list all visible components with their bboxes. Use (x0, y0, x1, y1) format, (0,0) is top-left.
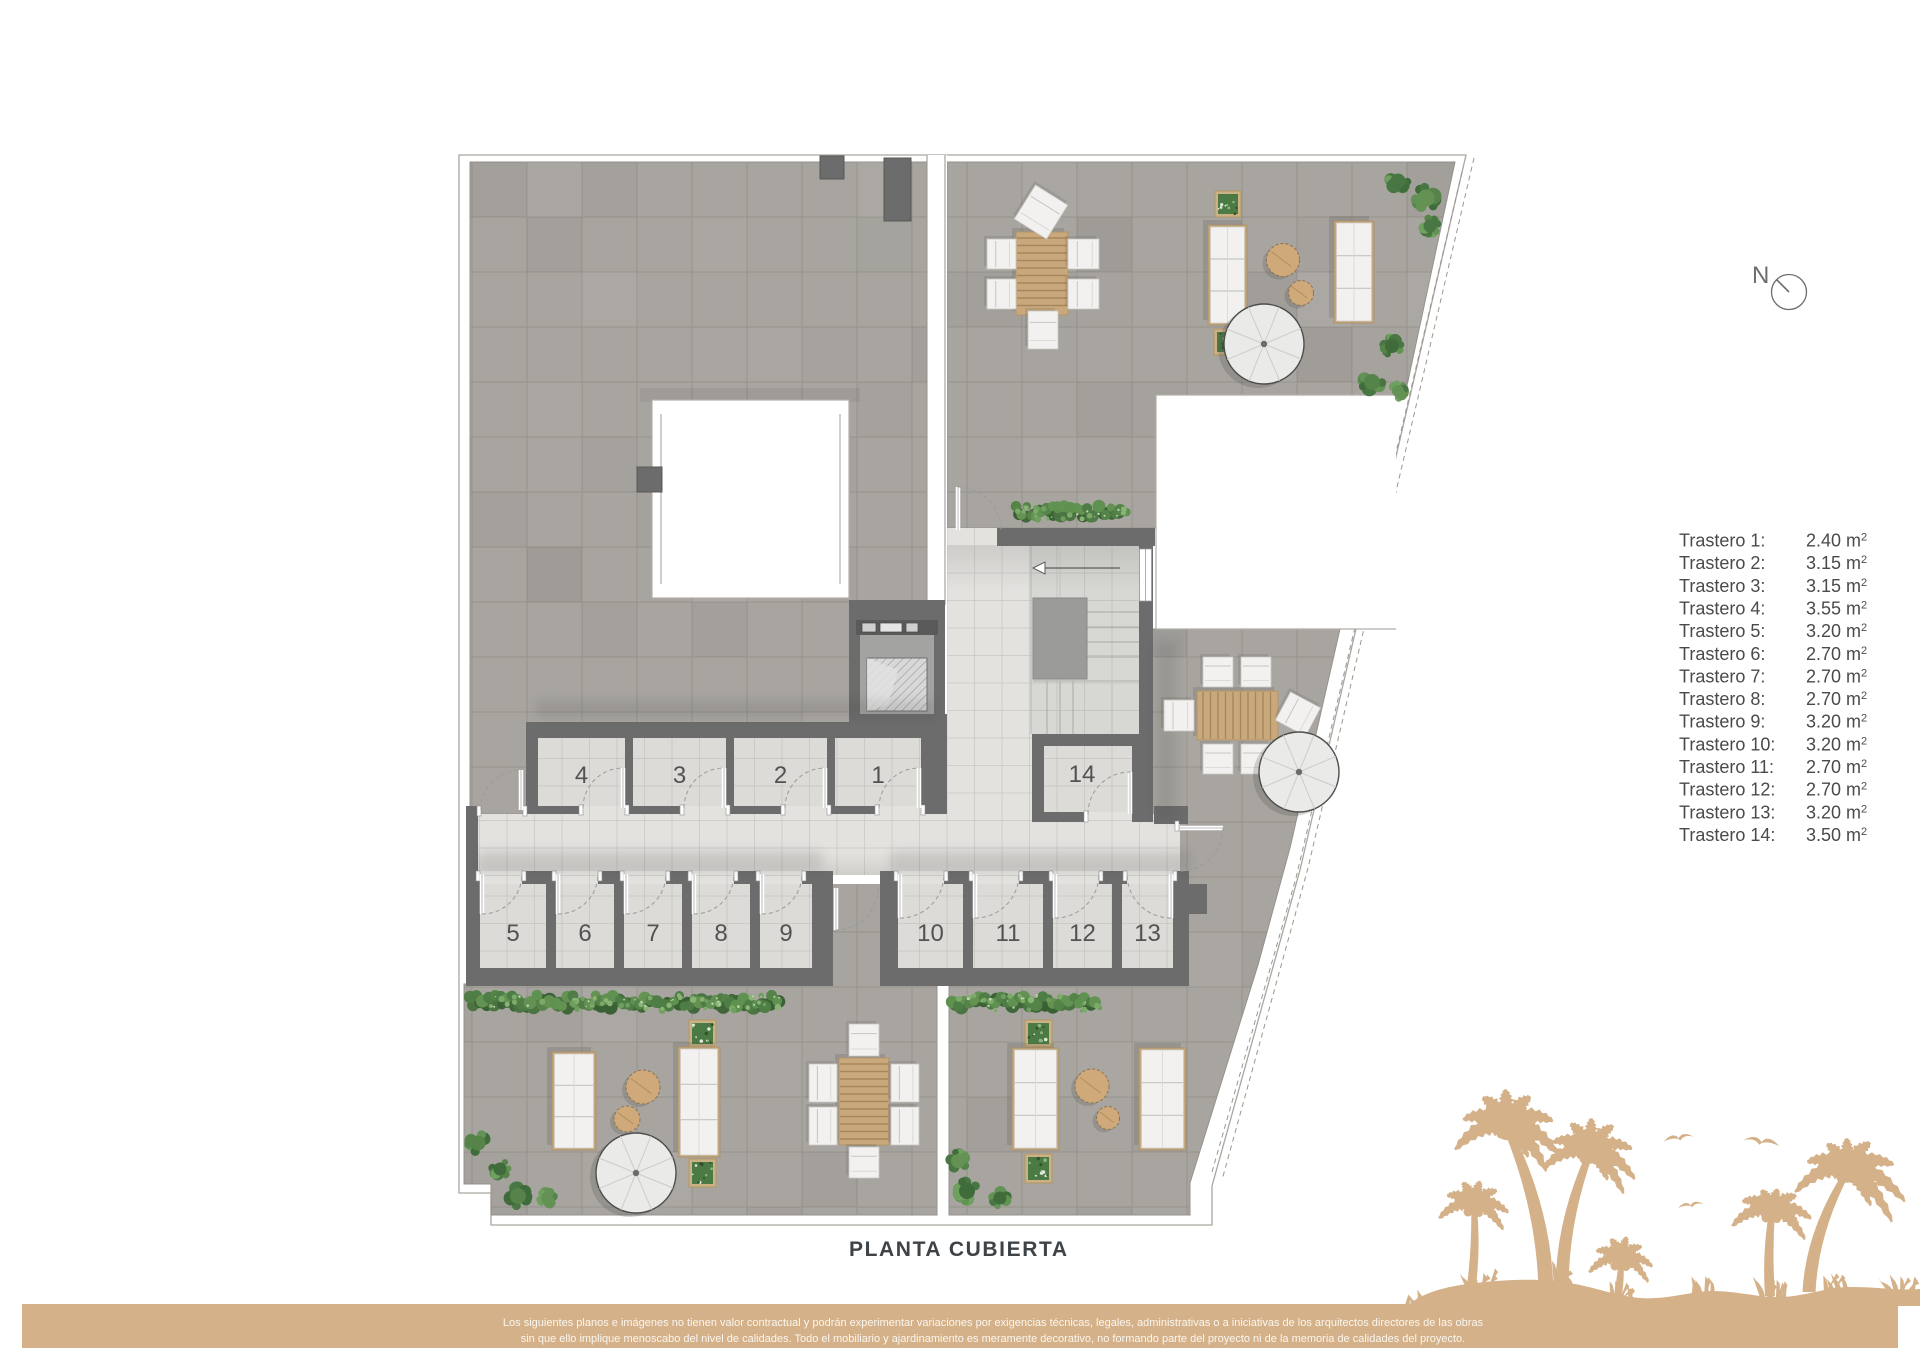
svg-text:Trastero 7:: Trastero 7: (1679, 666, 1765, 686)
svg-text:3.15 m2: 3.15 m2 (1806, 576, 1867, 596)
svg-text:3.20 m2: 3.20 m2 (1806, 712, 1867, 732)
svg-text:12: 12 (1069, 920, 1096, 947)
svg-text:3.50 m2: 3.50 m2 (1806, 825, 1867, 845)
svg-text:9: 9 (779, 920, 792, 947)
svg-text:3.20 m2: 3.20 m2 (1806, 621, 1867, 641)
svg-text:13: 13 (1134, 920, 1161, 947)
svg-text:8: 8 (714, 920, 727, 947)
svg-text:Trastero 5:: Trastero 5: (1679, 621, 1765, 641)
svg-text:2: 2 (774, 762, 787, 789)
svg-text:N: N (1752, 262, 1769, 289)
svg-text:3: 3 (673, 762, 686, 789)
svg-text:7: 7 (646, 920, 659, 947)
svg-text:3.20 m2: 3.20 m2 (1806, 734, 1867, 754)
svg-text:Trastero 8:: Trastero 8: (1679, 689, 1765, 709)
svg-text:Trastero 11:: Trastero 11: (1679, 757, 1774, 777)
svg-text:1: 1 (871, 762, 884, 789)
svg-text:Trastero 6:: Trastero 6: (1679, 644, 1765, 664)
svg-text:2.70 m2: 2.70 m2 (1806, 757, 1867, 777)
svg-text:3.55 m2: 3.55 m2 (1806, 599, 1867, 619)
svg-text:14: 14 (1069, 761, 1096, 788)
svg-text:2.40 m2: 2.40 m2 (1806, 531, 1867, 551)
svg-text:10: 10 (917, 920, 944, 947)
svg-text:Los siguientes planos e imágen: Los siguientes planos e imágenes no tien… (503, 1317, 1484, 1329)
svg-text:Trastero 12:: Trastero 12: (1679, 780, 1775, 800)
svg-text:Trastero 13:: Trastero 13: (1679, 802, 1775, 822)
svg-text:Trastero 3:: Trastero 3: (1679, 576, 1765, 596)
svg-text:6: 6 (578, 920, 591, 947)
svg-text:5: 5 (506, 920, 519, 947)
svg-text:11: 11 (996, 920, 1021, 947)
svg-text:Trastero 1:: Trastero 1: (1679, 531, 1765, 551)
svg-text:4: 4 (575, 762, 588, 789)
svg-text:2.70 m2: 2.70 m2 (1806, 780, 1867, 800)
svg-text:Trastero 10:: Trastero 10: (1679, 734, 1775, 754)
svg-text:sin que ello implique menoscab: sin que ello implique menoscabo del nive… (521, 1333, 1466, 1345)
svg-text:Trastero 2:: Trastero 2: (1679, 553, 1765, 573)
svg-text:Trastero 4:: Trastero 4: (1679, 599, 1765, 619)
svg-text:3.20 m2: 3.20 m2 (1806, 802, 1867, 822)
svg-text:Trastero 9:: Trastero 9: (1679, 712, 1765, 732)
svg-text:2.70 m2: 2.70 m2 (1806, 666, 1867, 686)
svg-text:3.15 m2: 3.15 m2 (1806, 553, 1867, 573)
svg-text:Trastero 14:: Trastero 14: (1679, 825, 1775, 845)
svg-text:2.70 m2: 2.70 m2 (1806, 644, 1867, 664)
svg-text:2.70 m2: 2.70 m2 (1806, 689, 1867, 709)
svg-text:PLANTA CUBIERTA: PLANTA CUBIERTA (849, 1238, 1069, 1261)
